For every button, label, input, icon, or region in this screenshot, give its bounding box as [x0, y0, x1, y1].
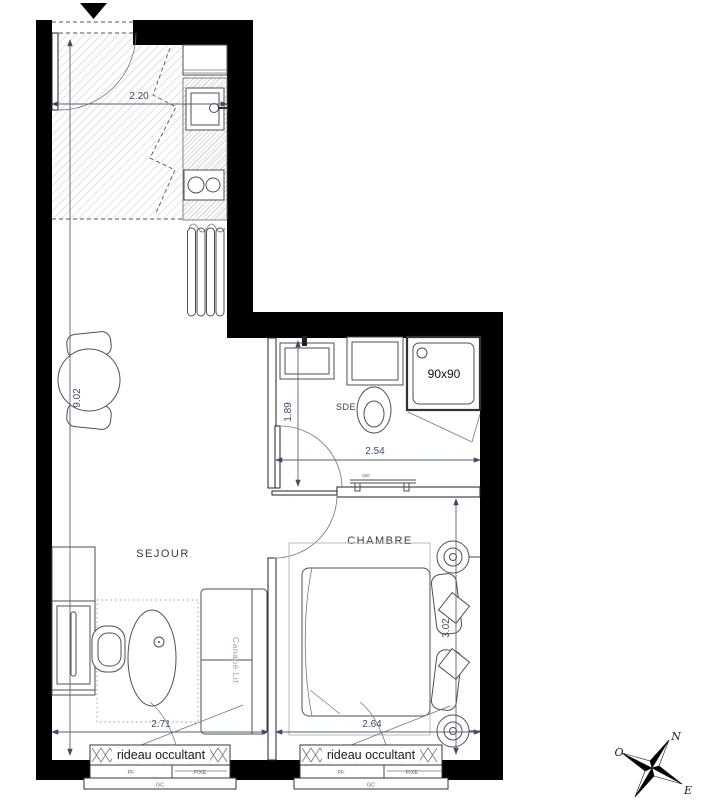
bedside-light: [437, 541, 480, 573]
room-label-living: SEJOUR: [136, 548, 190, 560]
shelf-size-label: 550: [362, 473, 370, 478]
window-frame: [300, 765, 442, 778]
armchair: [92, 626, 125, 672]
dim-bath-width: 2.54: [365, 446, 385, 457]
window-pane-left-label: PF: [337, 770, 345, 776]
wall-right: [480, 312, 503, 780]
compass-east-label: E: [683, 784, 692, 797]
window-pane-left-label: PF: [127, 770, 135, 776]
compass-west-label: O: [614, 746, 623, 759]
entrance-arrow-icon: [80, 3, 107, 19]
guardrail-label: GC: [367, 783, 375, 789]
dim-overall-depth: 9.02: [72, 388, 83, 408]
dining-table: [58, 349, 120, 411]
dim-bedroom-depth: 3.02: [441, 618, 452, 638]
wall-bottom-center: [230, 760, 302, 780]
bathroom: 90x90 SDE: [280, 336, 480, 442]
bedroom-west-partition: [268, 558, 276, 760]
room-label-bathroom: SDE: [336, 402, 356, 412]
bedside-light: [437, 715, 480, 747]
wall-bottom-left: [36, 760, 90, 780]
floor-plan-svg: 90x90 SDE 550 SEJOUR: [0, 0, 709, 800]
coffee-table: [128, 610, 176, 706]
entrance-door-leaf: [52, 33, 58, 110]
bedroom-door: [272, 491, 337, 558]
toilet: [357, 387, 391, 433]
wall-left: [36, 20, 52, 780]
dim-living-width: 2.71: [151, 719, 171, 730]
shower: 90x90: [407, 337, 480, 442]
bathroom-door: [275, 426, 342, 488]
dining-set: [58, 331, 120, 430]
radiator: [188, 228, 225, 316]
shower-door-line: [408, 412, 472, 442]
sideboard: [52, 547, 95, 695]
washing-machine: [347, 337, 403, 385]
double-bed: [302, 568, 469, 716]
dim-bath-depth: 1.89: [283, 402, 294, 422]
shower-door-line: [472, 414, 480, 442]
kitchen-sink: [186, 88, 228, 130]
washbasin: [280, 336, 334, 379]
curtain-label: rideau occultant: [327, 748, 416, 762]
sofa-bed-label: Canapé Lit: [231, 637, 241, 683]
guardrail-label: GC: [156, 783, 164, 789]
living-room: SEJOUR Canapé Lit: [52, 547, 267, 734]
compass-north-label: N: [670, 730, 681, 743]
kitchen-hob: [184, 170, 224, 200]
sofa-bed: Canapé Lit: [201, 589, 267, 734]
room-label-bedroom: CHAMBRE: [347, 535, 413, 547]
compass-rose: N O E: [614, 730, 692, 797]
window-pane-right-label: FIXE: [194, 770, 207, 776]
dim-bedroom-width: 2.64: [362, 719, 382, 730]
window-pane-right-label: FIXE: [406, 770, 419, 776]
wall-kitchen-right: [227, 20, 253, 338]
dim-entry-width: 2.20: [129, 91, 149, 102]
window-frame: [90, 765, 230, 778]
wall-middle-horizontal: [227, 312, 503, 338]
kitchen-tall-unit: [183, 45, 227, 75]
bedroom: CHAMBRE: [289, 535, 480, 747]
curtain-label: rideau occultant: [117, 748, 206, 762]
shower-size-label: 90x90: [428, 367, 461, 381]
wall-bottom-right: [442, 760, 503, 780]
floor-plan-page: 90x90 SDE 550 SEJOUR: [0, 0, 709, 800]
